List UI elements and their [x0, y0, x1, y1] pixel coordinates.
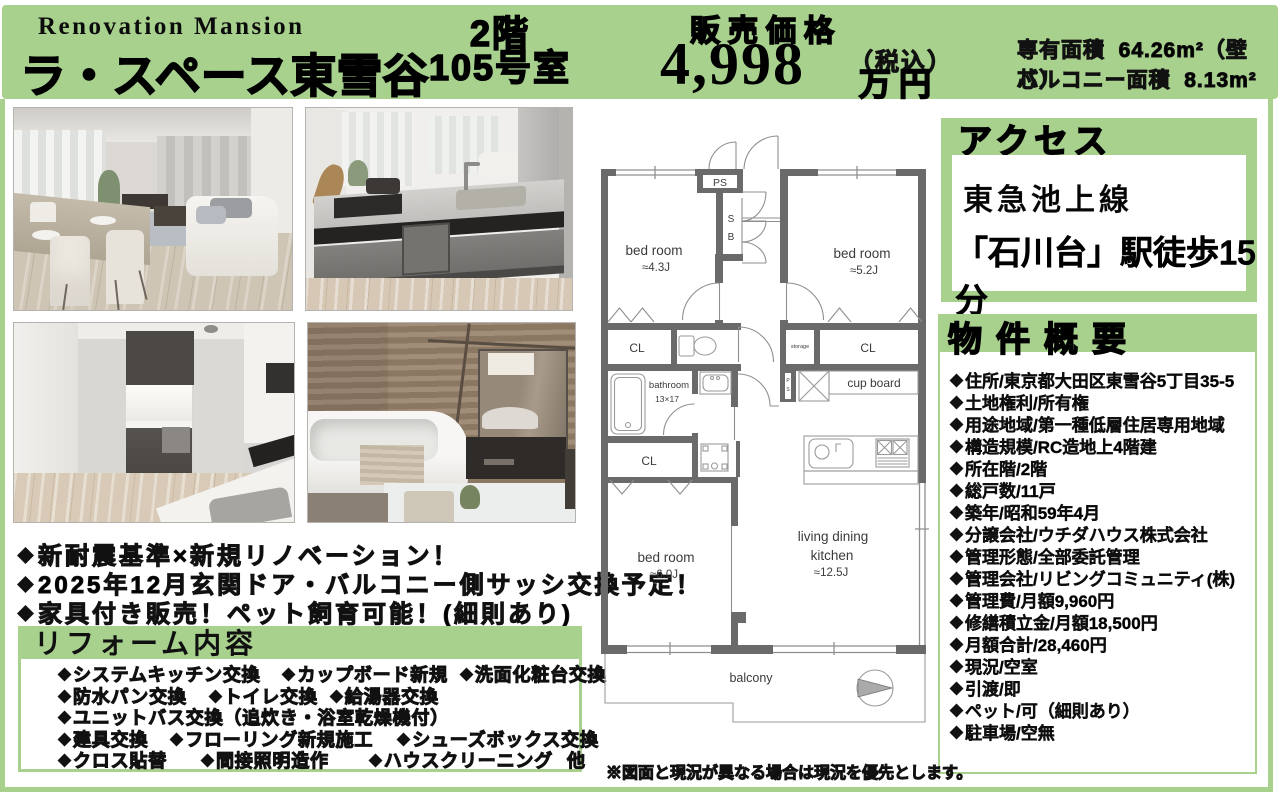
svg-text:bed room: bed room — [625, 243, 682, 258]
svg-text:≈12.5J: ≈12.5J — [814, 567, 848, 579]
svg-text:bed room: bed room — [833, 246, 890, 261]
svg-text:CL: CL — [629, 341, 645, 355]
svg-text:CL: CL — [860, 341, 876, 355]
svg-text:kitchen: kitchen — [811, 548, 854, 563]
svg-text:≈5.2J: ≈5.2J — [850, 265, 878, 277]
svg-text:S: S — [728, 214, 735, 225]
svg-text:balcony: balcony — [729, 671, 773, 685]
svg-text:≈4.3J: ≈4.3J — [642, 262, 670, 274]
svg-text:13×17: 13×17 — [655, 394, 679, 404]
svg-text:bathroom: bathroom — [649, 380, 689, 391]
svg-text:bed room: bed room — [637, 550, 694, 565]
svg-text:living dining: living dining — [798, 529, 869, 544]
svg-text:B: B — [728, 232, 735, 243]
svg-text:storage: storage — [791, 344, 809, 350]
svg-text:≈6.0J: ≈6.0J — [650, 569, 678, 581]
svg-text:CL: CL — [641, 454, 657, 468]
svg-text:cup board: cup board — [847, 376, 900, 390]
svg-text:PS: PS — [713, 177, 727, 189]
